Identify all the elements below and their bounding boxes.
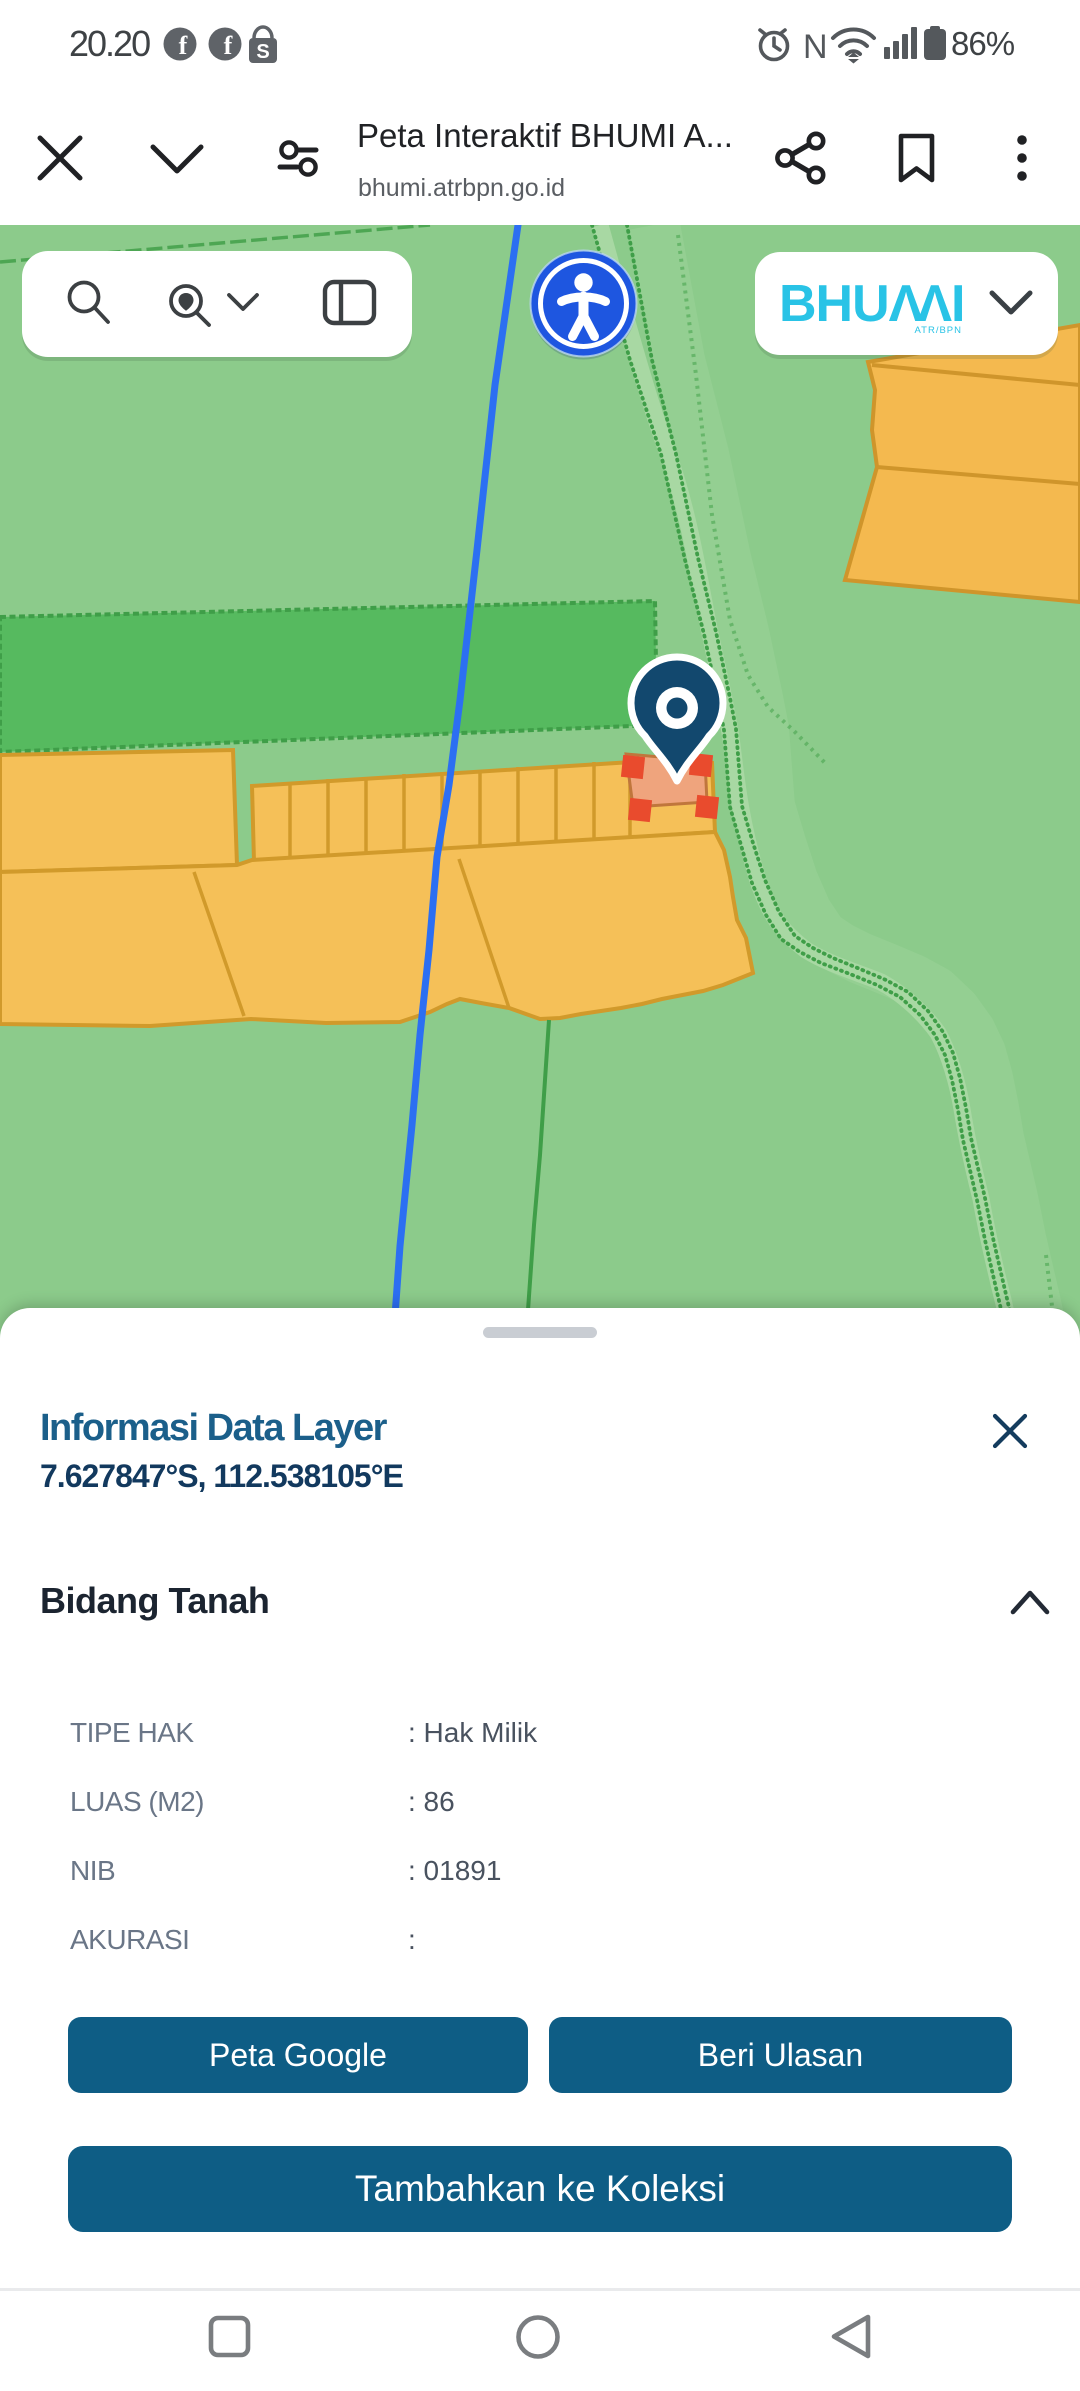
svg-text:f: f [179, 31, 188, 60]
svg-text:ATR/BPN: ATR/BPN [915, 325, 962, 336]
svg-text:N: N [803, 28, 828, 66]
svg-text:S: S [256, 41, 269, 63]
svg-text:f: f [224, 31, 233, 60]
